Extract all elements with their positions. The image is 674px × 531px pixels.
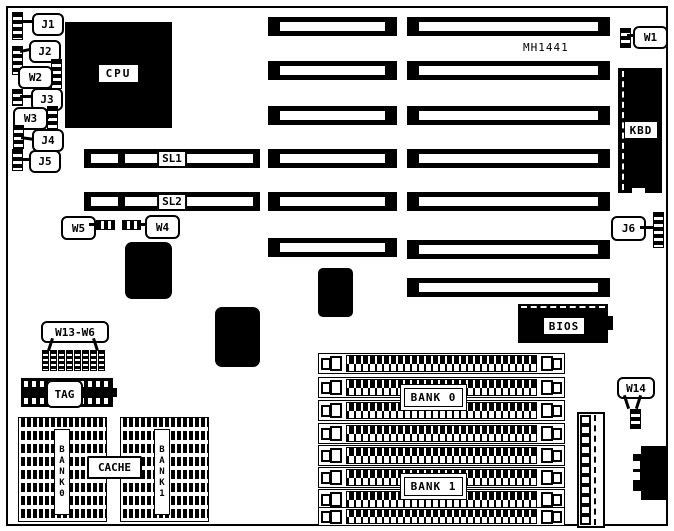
j4-callout: J4 [32, 129, 64, 152]
cache-bank1-vertical-label: BANK1 [154, 429, 170, 515]
slot-contact-stripe [419, 22, 598, 31]
slot-contact-stripe [419, 154, 598, 163]
slot-contact-stripe [280, 111, 385, 120]
simm-socket [318, 445, 565, 466]
slot-contact-stripe [419, 197, 598, 206]
ic-chip [125, 242, 172, 299]
bios-tab [606, 316, 613, 330]
simm-socket [318, 353, 565, 374]
jumper-cell [50, 350, 57, 371]
jumper-cell [90, 350, 97, 371]
cpu-chip: CPU [65, 22, 172, 128]
simm-clip [330, 380, 342, 395]
simm-clip [552, 405, 562, 417]
bank0-label: BANK 0 [404, 388, 463, 407]
simm-clip [552, 472, 562, 484]
jumper-cell [42, 350, 49, 371]
slot-contact-stripe [280, 22, 385, 31]
j5-callout: J5 [29, 150, 61, 173]
j6-pointer [640, 226, 654, 229]
slot-contact-stripe [419, 283, 598, 292]
cache-label: CACHE [87, 456, 142, 479]
jumper-cell [82, 350, 89, 371]
cpu-label: CPU [99, 65, 138, 82]
connector-dash [594, 415, 596, 525]
simm-clip [330, 403, 342, 418]
simm-socket [318, 507, 565, 526]
simm-clip [330, 470, 342, 485]
slot-key-gap [118, 149, 125, 168]
simm-clip [552, 428, 562, 440]
edge-connector-notch [632, 472, 640, 480]
slot-contact-stripe [419, 66, 598, 75]
edge-connector-notch [632, 461, 640, 469]
simm-clip [552, 450, 562, 462]
w5-jumper [96, 220, 115, 230]
kbd-notch [632, 188, 645, 193]
w2-callout: W2 [18, 66, 53, 89]
simm-clip [552, 511, 562, 523]
slot-contact-stripe [280, 154, 385, 163]
simm-clip [330, 510, 342, 524]
w14-jumper [630, 409, 641, 429]
bios-chip: BIOS [518, 304, 608, 343]
expansion-slot [407, 192, 610, 211]
w1-jumper [620, 28, 631, 48]
slot-contact-stripe [280, 243, 385, 252]
sl1-label: SL1 [157, 150, 187, 168]
w5-callout: W5 [61, 216, 96, 240]
slot-contact-stripe [280, 197, 385, 206]
slot-key-gap [118, 192, 125, 211]
bios-pin1-dash [521, 306, 605, 308]
simm-contacts [346, 425, 537, 442]
w13-w6-jumper-row [42, 350, 106, 370]
power-connector [577, 412, 605, 528]
simm-clip [552, 494, 562, 506]
simm-clip [330, 448, 342, 463]
bios-label: BIOS [544, 318, 584, 334]
expansion-slot [268, 149, 397, 168]
simm-clip [330, 426, 342, 441]
simm-clip [552, 382, 562, 394]
w4-callout: W4 [145, 215, 180, 239]
motherboard-diagram: MH1441 SL1 SL2 CPU KBD BIOS [0, 0, 674, 531]
cache-bank0-vertical-label: BANK0 [54, 429, 70, 515]
simm-clip [330, 356, 342, 371]
board-model-text: MH1441 [523, 41, 569, 54]
slot-sl2: SL2 [84, 192, 260, 211]
simm-clip [552, 358, 562, 370]
connector-pins [580, 415, 591, 525]
expansion-slot [268, 17, 397, 36]
jumper-cell [66, 350, 73, 371]
slot-contact-stripe [419, 245, 598, 254]
kbd-chip: KBD [618, 68, 662, 193]
expansion-slot [268, 106, 397, 125]
simm-contacts [346, 355, 537, 372]
edge-connector [641, 446, 667, 500]
slot-sl1: SL1 [84, 149, 260, 168]
simm-clip [330, 492, 342, 507]
simm-contacts [346, 447, 537, 464]
jumper-cell [58, 350, 65, 371]
expansion-slot [268, 192, 397, 211]
simm-contacts [346, 509, 537, 524]
tag-tab [113, 388, 117, 397]
expansion-slot [407, 149, 610, 168]
ic-chip [215, 307, 260, 367]
bank1-label: BANK 1 [404, 477, 463, 496]
jumper-cell [98, 350, 105, 371]
expansion-slot [407, 17, 610, 36]
sl2-label: SL2 [157, 193, 187, 211]
expansion-slot [268, 61, 397, 80]
ic-chip [318, 268, 353, 317]
expansion-slot [407, 106, 610, 125]
j1-jumper [12, 12, 23, 40]
kbd-pin1-dash [622, 71, 624, 190]
tag-label: TAG [46, 380, 83, 408]
expansion-slot [268, 238, 397, 257]
w1-callout: W1 [633, 26, 668, 49]
kbd-label: KBD [625, 122, 657, 138]
expansion-slot [407, 240, 610, 259]
slot-contact-stripe [419, 111, 598, 120]
simm-socket [318, 423, 565, 444]
expansion-slot [407, 278, 610, 297]
jumper-cell [74, 350, 81, 371]
slot-contact-stripe [280, 66, 385, 75]
j1-callout: J1 [32, 13, 64, 36]
j6-jumper [653, 212, 664, 248]
expansion-slot [407, 61, 610, 80]
